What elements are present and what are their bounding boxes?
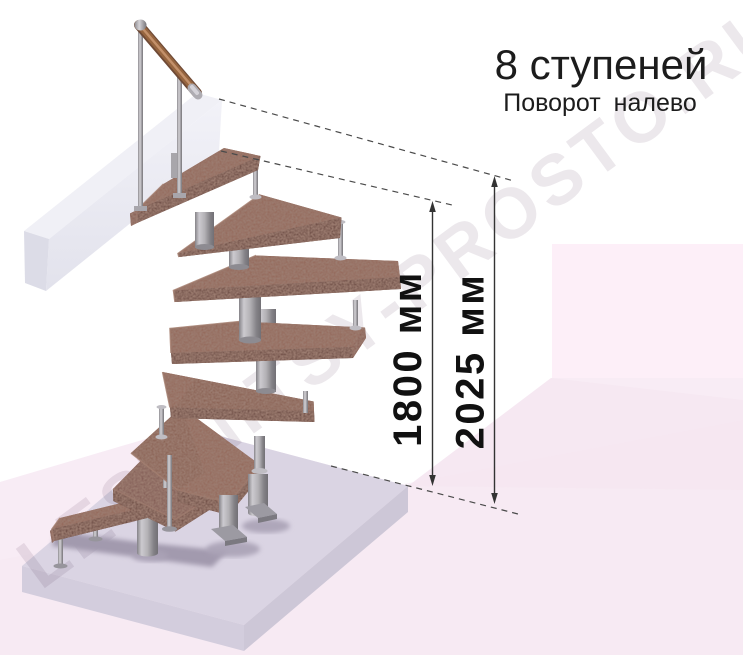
svg-text:2025 мм: 2025 мм bbox=[448, 273, 492, 450]
svg-text:8 ступеней: 8 ступеней bbox=[495, 41, 708, 88]
svg-text:1800 мм: 1800 мм bbox=[386, 270, 430, 447]
svg-text:Поворот налево: Поворот налево bbox=[503, 89, 697, 117]
